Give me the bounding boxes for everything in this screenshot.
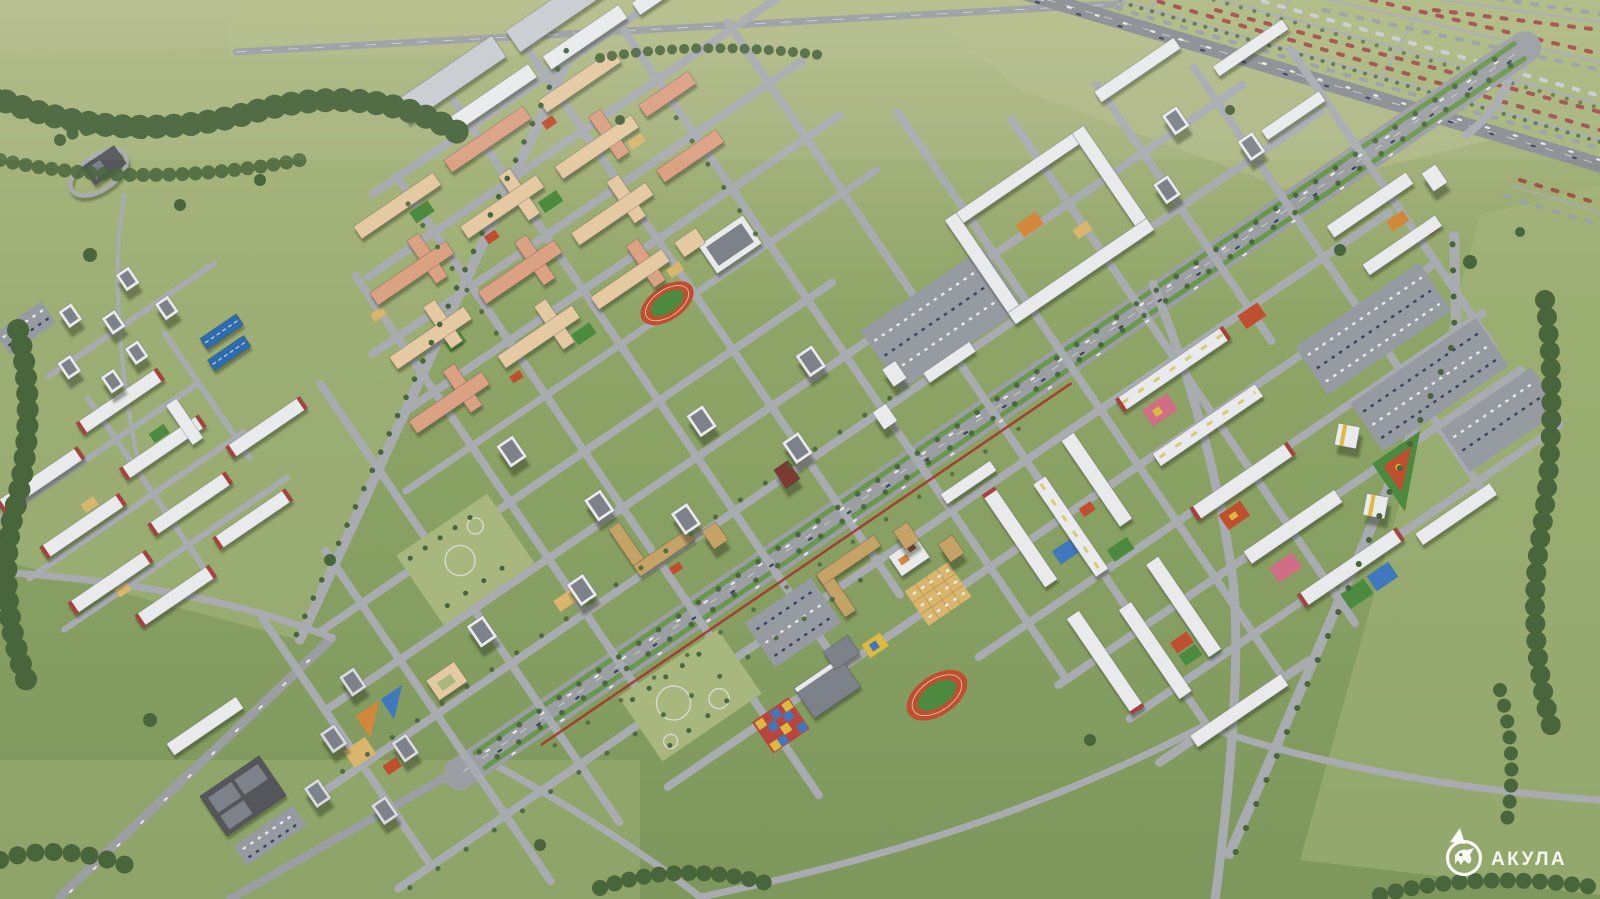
atmospheric-haze [0, 0, 1600, 160]
aerial-render-page: АКУЛА [0, 0, 1600, 899]
brand-wordmark: АКУЛА [1491, 849, 1567, 870]
aerial-render: АКУЛА [0, 0, 1600, 899]
